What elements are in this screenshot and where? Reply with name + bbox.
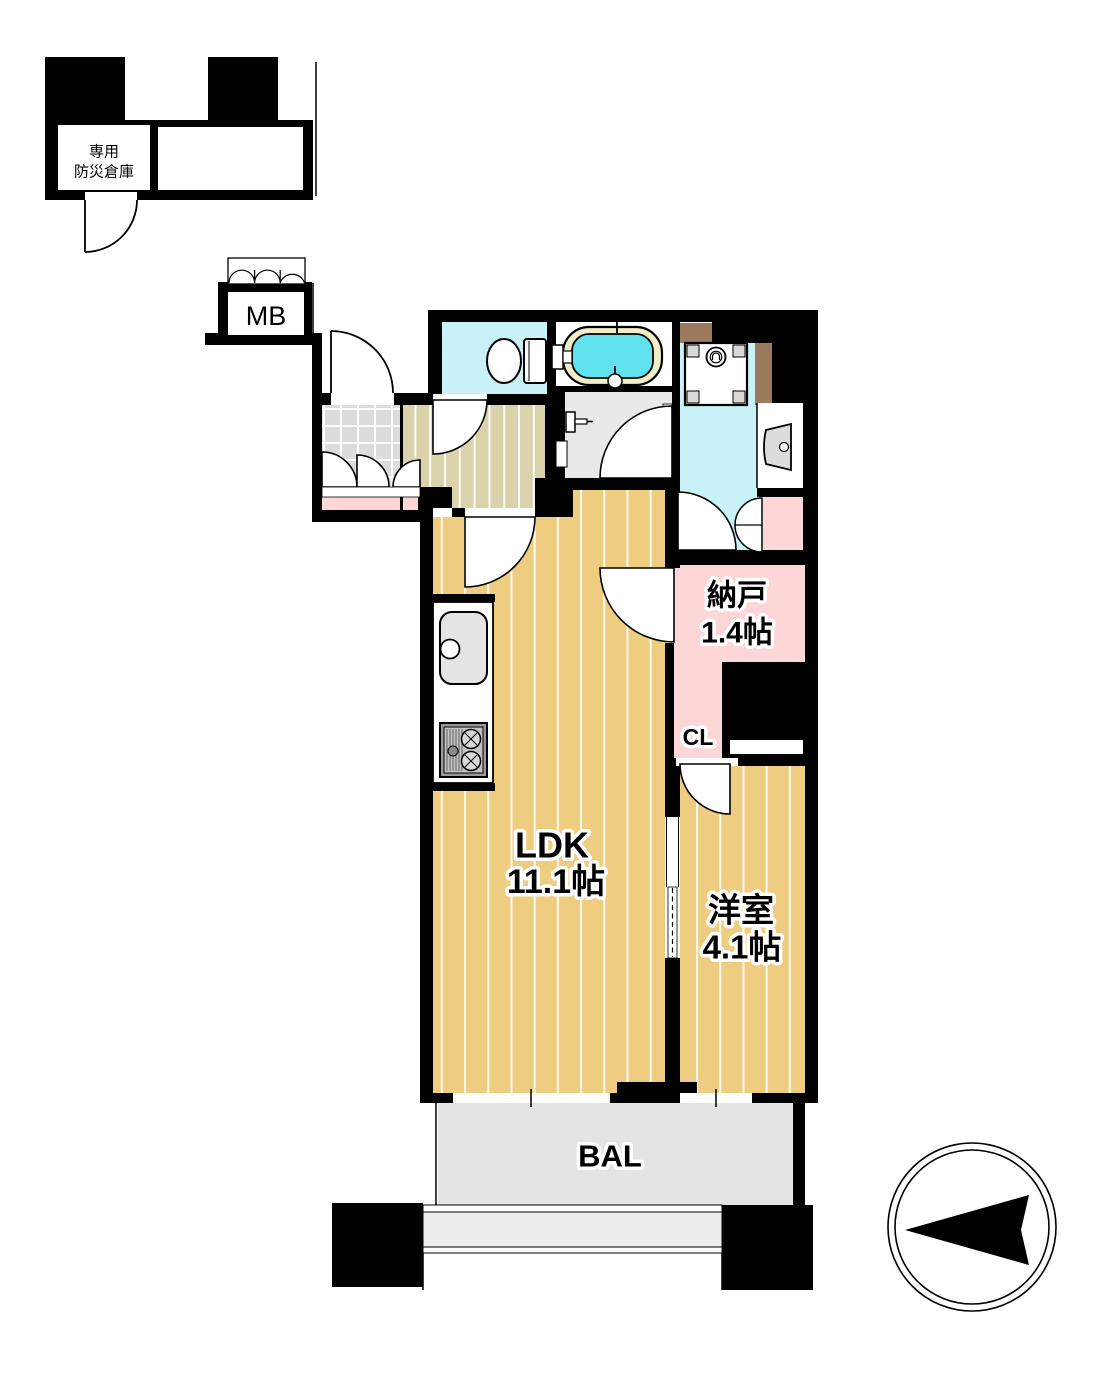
toilet-bowl — [487, 339, 521, 383]
washer-tap-spout — [575, 419, 587, 424]
closet-label: CL — [683, 724, 714, 750]
floor-plan-page: 専用 防災倉庫 MB 納戸 1.4帖 CL LDK 11.1帖 洋室 4.1帖 … — [0, 0, 1105, 1375]
balcony-rail-side-lines — [423, 1253, 722, 1290]
pipe-space-left — [680, 323, 712, 343]
wall-meter-box-tab — [205, 333, 218, 345]
western-room-name: 洋室 — [708, 892, 774, 929]
entrance-door-swing — [331, 331, 393, 393]
wall-entry-left — [312, 333, 322, 510]
pipe-space-right — [755, 342, 772, 405]
washer-pan-fixture — [685, 343, 747, 405]
balcony-rail-band-1 — [423, 1205, 722, 1212]
ldk-floor-upper-stripes — [573, 490, 665, 517]
wall-unit-right-upper — [803, 310, 818, 565]
balcony-label: BAL — [578, 1139, 642, 1174]
bathtub-drain-knob — [608, 374, 622, 388]
wall-genkan-corner-block — [418, 487, 452, 510]
bathtub-faucet — [552, 345, 563, 369]
toilet-tank — [524, 339, 546, 383]
wall-unit-right-lower — [805, 558, 818, 1103]
washer-pan-corner-tl — [687, 345, 699, 357]
western-room-size: 4.1帖 — [703, 929, 782, 966]
storage-block-room-2 — [158, 127, 303, 190]
kitchen-fixtures — [433, 602, 493, 783]
balcony-rail-band-2 — [423, 1212, 722, 1247]
entrance-door-opening — [331, 393, 394, 405]
wall-entry-bottom — [312, 510, 433, 522]
pillar-bottom-left — [332, 1203, 423, 1287]
wall-washroom-bottom — [556, 478, 680, 490]
sliding-door-gap — [665, 817, 680, 887]
storage-room-name: 納戸 — [707, 580, 767, 613]
disaster-storage-door-opening — [85, 192, 137, 200]
washer-pan-corner-tr — [733, 345, 745, 357]
pillar-bottom-right — [722, 1205, 813, 1290]
washer-tap — [566, 412, 575, 432]
wall-unit-left-upper — [428, 310, 442, 405]
wall-partition-lower — [665, 958, 680, 1093]
storage-block-gap-1 — [125, 57, 208, 120]
meter-box-louver — [228, 258, 305, 284]
washer-pan-corner-bl — [687, 391, 699, 403]
vanity-fixture — [757, 403, 803, 488]
meter-box-louver-box — [228, 258, 305, 284]
compass-north-indicator — [888, 1143, 1056, 1311]
stove-knob — [448, 746, 458, 756]
wall-bottom-jog — [617, 1082, 697, 1093]
wall-partition-upper — [665, 758, 680, 817]
ldk-size: 11.1帖 — [507, 863, 605, 901]
toilet-fixture — [487, 339, 546, 383]
disaster-storage-door-swing — [85, 200, 137, 252]
bathtub-faucet-spout — [563, 351, 572, 363]
disaster-storage-label-line1: 専用 — [89, 144, 119, 161]
washer-pan-corner-br — [733, 391, 745, 403]
shoe-box-strip — [322, 497, 420, 510]
storage-room-size: 1.4帖 — [701, 617, 773, 650]
vanity-drain — [780, 443, 789, 452]
wall-kitchen-tick-bottom — [432, 783, 495, 791]
washroom-wall-box — [556, 441, 567, 467]
ldk-door-threshold — [433, 508, 535, 517]
shoe-closet-strip — [322, 487, 420, 497]
wall-ldk-left — [420, 510, 433, 1103]
meter-box-label: MB — [246, 301, 287, 331]
wall-kitchen-tick-top — [432, 594, 495, 602]
balcony-rail-band-3 — [423, 1247, 722, 1253]
storage-block-gap-2 — [278, 57, 313, 120]
wall-hall-ldk-chunk — [535, 478, 573, 517]
wall-bath-right — [672, 322, 680, 490]
wall-balcony-right — [793, 1103, 805, 1205]
bathtub-water — [572, 334, 653, 378]
wall-hallway-right — [545, 400, 556, 480]
wall-top-right-fill — [712, 310, 818, 343]
disaster-storage-label-line2: 防災倉庫 — [74, 164, 134, 181]
ldk-name: LDK — [515, 825, 589, 866]
linen-closet-floor — [763, 497, 803, 550]
wall-pillar-upper — [722, 662, 805, 712]
floor-plan-drawing: 専用 防災倉庫 MB 納戸 1.4帖 CL LDK 11.1帖 洋室 4.1帖 … — [0, 0, 1105, 1375]
pillar-notch — [730, 740, 803, 754]
wall-storage-top — [665, 550, 818, 565]
wall-threshold-tick — [452, 508, 465, 517]
kitchen-faucet — [441, 640, 460, 659]
